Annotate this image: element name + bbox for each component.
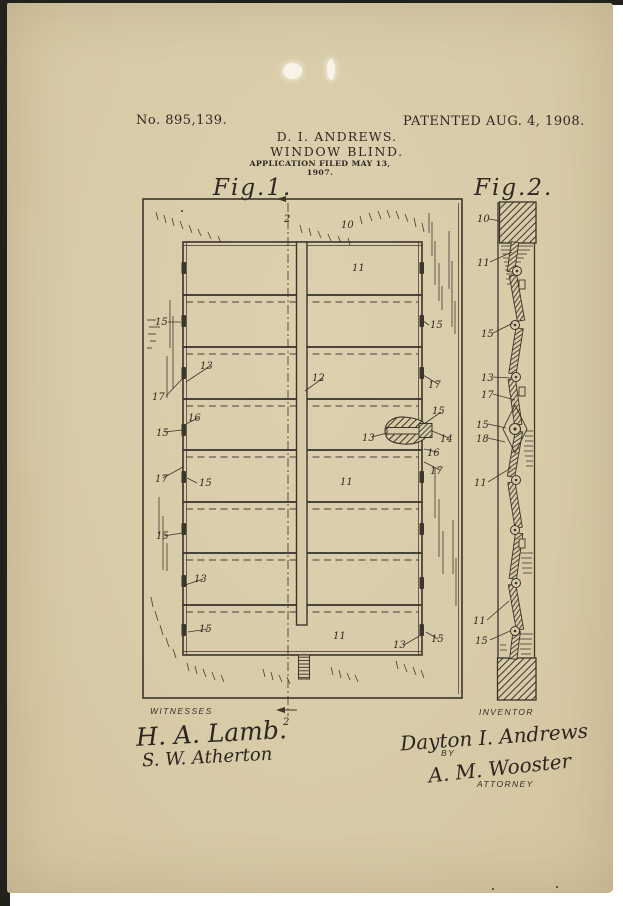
ref-number-17: 17 <box>152 392 165 403</box>
ref-number-13: 13 <box>362 433 375 444</box>
witnesses-heading: WITNESSES <box>150 706 213 716</box>
ref-number-11: 11 <box>333 631 346 642</box>
ref-number-10: 10 <box>341 220 354 231</box>
ref-number-15: 15 <box>481 329 494 340</box>
fig2-ref-labels: 10111513171518111115 <box>473 214 494 647</box>
ref-number-15: 15 <box>430 320 443 331</box>
ref-number-15: 15 <box>475 636 488 647</box>
ref-number-12: 12 <box>312 373 325 384</box>
ref-number-13: 13 <box>194 574 207 585</box>
ref-number-10: 10 <box>477 214 490 225</box>
ref-number-17: 17 <box>481 390 494 401</box>
fig1-tilt-rod <box>297 242 308 625</box>
ref-number-11: 11 <box>352 263 365 274</box>
ref-number-15: 15 <box>156 531 169 542</box>
ref-number-15: 15 <box>476 420 489 431</box>
ref-number-15: 15 <box>199 478 212 489</box>
attorney-heading: ATTORNEY <box>477 779 534 789</box>
by-label: BY <box>441 748 455 758</box>
ref-number-2: 2 <box>283 214 290 225</box>
fig1-label: Fig.1. <box>212 175 292 201</box>
ref-number-13: 13 <box>393 640 406 651</box>
fig2-label: Fig.2. <box>473 175 553 201</box>
ref-number-13: 13 <box>481 373 494 384</box>
patent-page: No. 895,139. PATENTED AUG. 4, 1908. D. I… <box>0 0 623 906</box>
ref-number-11: 11 <box>474 478 487 489</box>
ref-number-18: 18 <box>476 434 489 445</box>
ref-number-13: 13 <box>200 361 213 372</box>
ref-number-15: 15 <box>155 317 168 328</box>
fig1-drawing: Fig.1. <box>143 175 462 716</box>
ref-number-15: 15 <box>199 624 212 635</box>
ref-number-11: 11 <box>340 477 353 488</box>
ref-number-17: 17 <box>155 474 168 485</box>
ref-number-15: 15 <box>156 428 169 439</box>
ref-number-17: 17 <box>428 380 441 391</box>
fig1-bottom-pin <box>299 655 310 679</box>
ref-number-16: 16 <box>427 448 440 459</box>
inventor-heading: INVENTOR <box>479 707 534 717</box>
ref-number-11: 11 <box>473 616 486 627</box>
ref-number-15: 15 <box>432 406 445 417</box>
fig2-top-block <box>500 202 537 243</box>
ref-number-11: 11 <box>477 258 490 269</box>
ref-number-17: 17 <box>430 466 443 477</box>
fig2-bottom-block <box>498 658 537 700</box>
ref-number-16: 16 <box>188 413 201 424</box>
fig1-knob <box>385 417 432 444</box>
fig1-section-line <box>276 196 297 716</box>
ref-number-15: 15 <box>431 634 444 645</box>
ref-number-14: 14 <box>440 434 453 445</box>
